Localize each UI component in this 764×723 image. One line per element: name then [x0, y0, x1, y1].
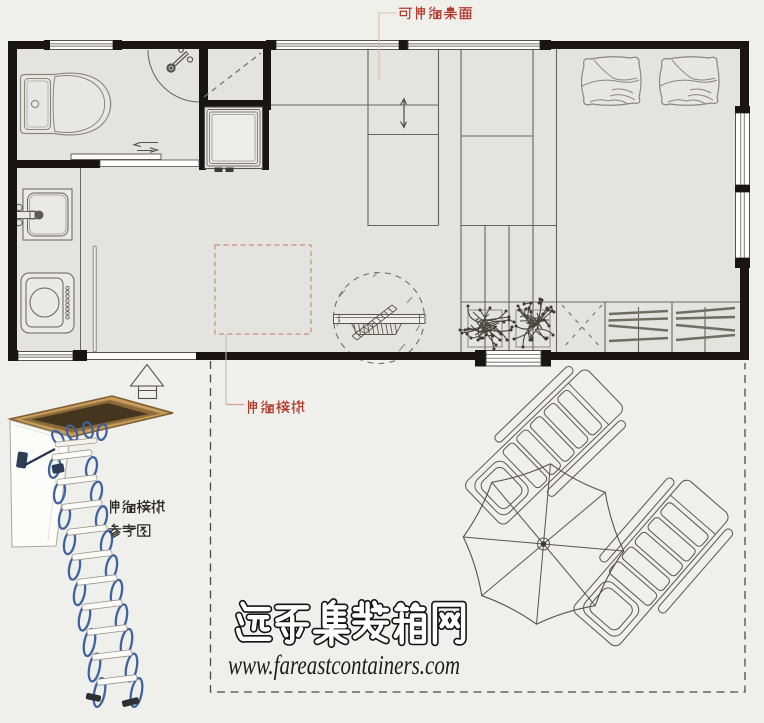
svg-text:www.fareastcontainers.com: www.fareastcontainers.com [228, 650, 460, 680]
